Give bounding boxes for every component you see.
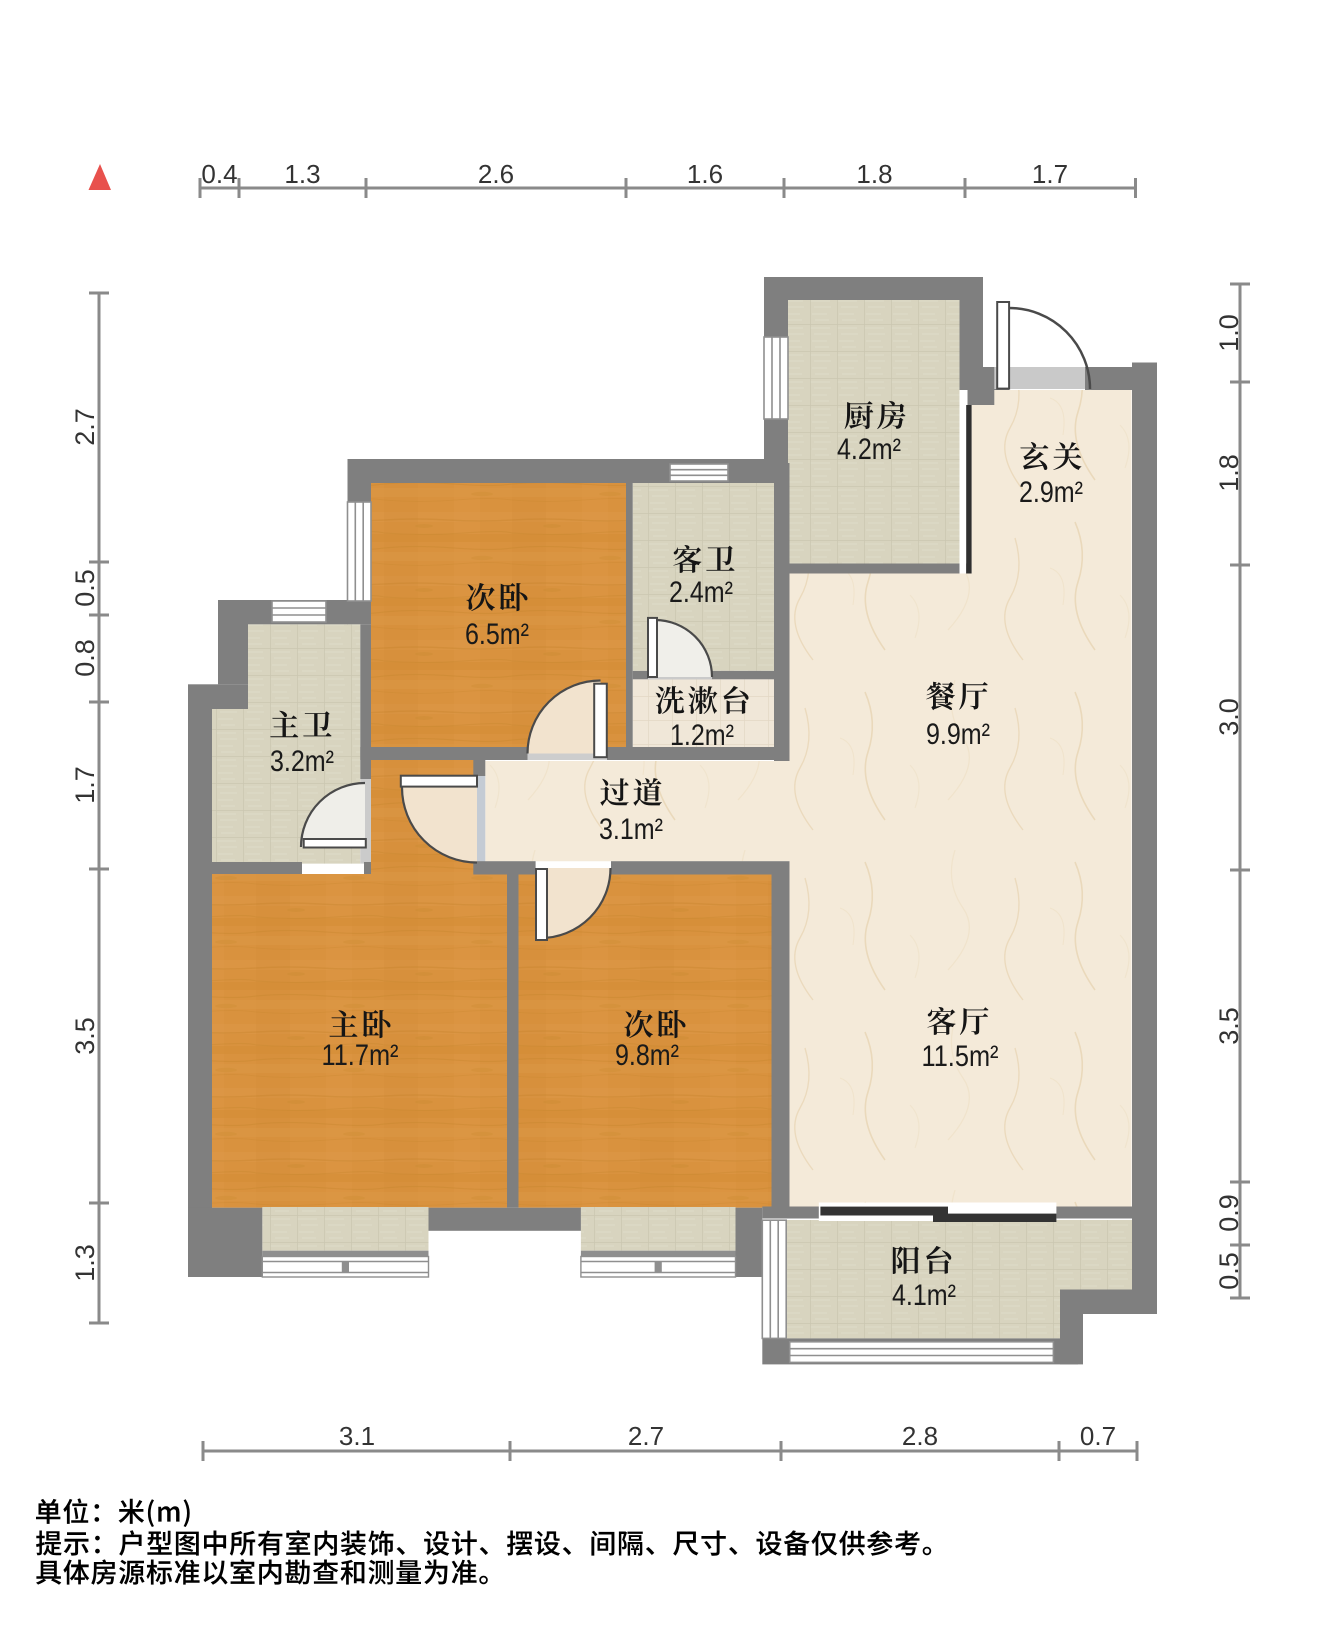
svg-text:3.2m²: 3.2m²: [270, 745, 334, 778]
svg-text:3.5: 3.5: [70, 1017, 100, 1055]
svg-text:1.0: 1.0: [1214, 314, 1244, 352]
svg-text:1.7: 1.7: [1032, 159, 1068, 189]
svg-text:2.6: 2.6: [478, 159, 514, 189]
svg-text:0.4: 0.4: [201, 159, 237, 189]
svg-text:9.8m²: 9.8m²: [615, 1039, 679, 1072]
svg-text:1.7: 1.7: [70, 766, 100, 804]
svg-text:1.3: 1.3: [284, 159, 320, 189]
svg-text:3.1: 3.1: [339, 1421, 375, 1451]
svg-text:4.2m²: 4.2m²: [837, 433, 901, 466]
svg-text:3.5: 3.5: [1214, 1007, 1244, 1045]
svg-text:2.4m²: 2.4m²: [669, 576, 733, 609]
svg-text:11.5m²: 11.5m²: [922, 1040, 999, 1073]
svg-text:1.3: 1.3: [70, 1244, 100, 1282]
svg-text:0.9: 0.9: [1214, 1194, 1244, 1232]
svg-text:1.8: 1.8: [856, 159, 892, 189]
svg-text:2.8: 2.8: [902, 1421, 938, 1451]
svg-text:0.5: 0.5: [70, 569, 100, 607]
svg-text:3.1m²: 3.1m²: [599, 813, 663, 846]
svg-text:4.1m²: 4.1m²: [892, 1279, 956, 1312]
svg-text:1.6: 1.6: [687, 159, 723, 189]
svg-text:0.5: 0.5: [1214, 1252, 1244, 1290]
svg-text:2.7: 2.7: [628, 1421, 664, 1451]
svg-text:1.8: 1.8: [1214, 454, 1244, 492]
svg-text:2.7: 2.7: [70, 408, 100, 446]
svg-text:6.5m²: 6.5m²: [465, 618, 529, 651]
svg-text:0.7: 0.7: [1080, 1421, 1116, 1451]
svg-text:0.8: 0.8: [70, 639, 100, 677]
svg-text:2.9m²: 2.9m²: [1019, 476, 1083, 509]
svg-text:1.2m²: 1.2m²: [670, 719, 734, 752]
svg-text:3.0: 3.0: [1214, 698, 1244, 736]
svg-text:11.7m²: 11.7m²: [322, 1039, 399, 1072]
svg-text:9.9m²: 9.9m²: [926, 718, 990, 751]
